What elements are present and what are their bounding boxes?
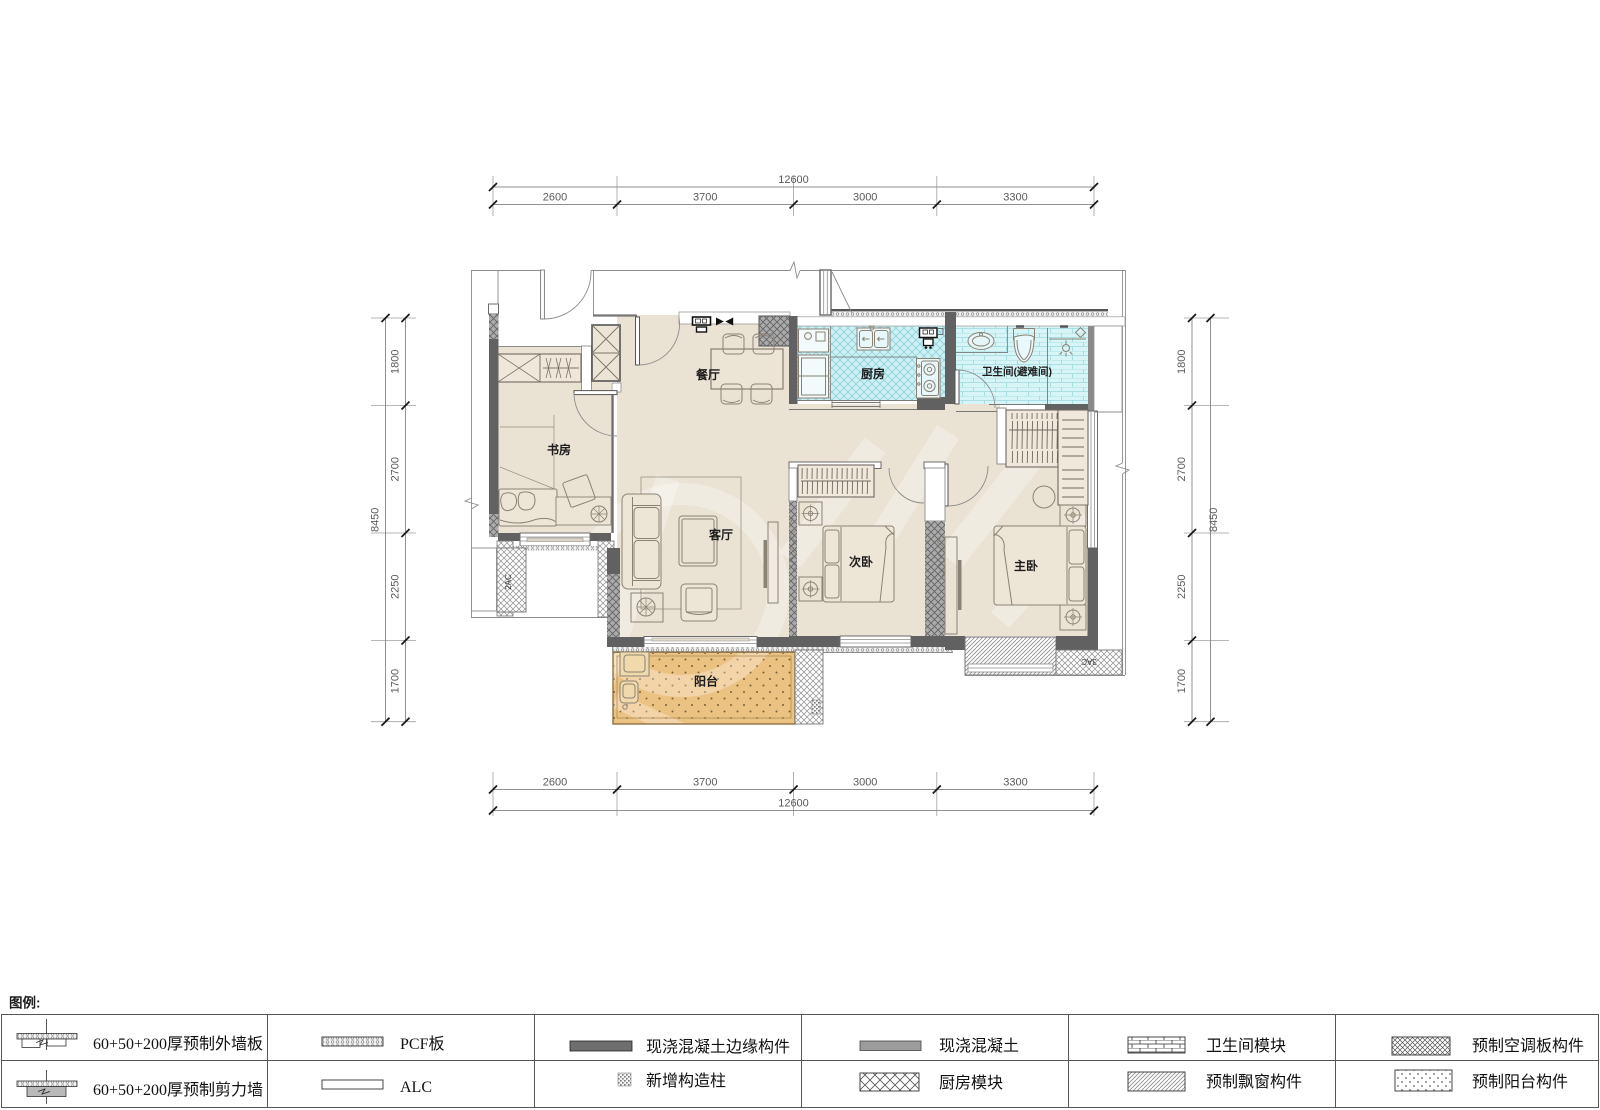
svg-text:60+50+200厚预制剪力墙: 60+50+200厚预制剪力墙 <box>93 1081 263 1099</box>
svg-text:餐厅: 餐厅 <box>696 367 720 382</box>
svg-text:新增构造柱: 新增构造柱 <box>646 1072 726 1090</box>
svg-text:2600: 2600 <box>543 192 567 204</box>
svg-text:3700: 3700 <box>693 192 717 204</box>
svg-text:3000: 3000 <box>853 192 877 204</box>
svg-text:客厅: 客厅 <box>708 527 733 542</box>
svg-text:2700: 2700 <box>390 457 402 481</box>
svg-text:3000: 3000 <box>853 777 877 789</box>
svg-text:2250: 2250 <box>1176 574 1188 598</box>
svg-text:书房: 书房 <box>547 442 571 457</box>
svg-text:现浇混凝土: 现浇混凝土 <box>939 1037 1019 1055</box>
svg-text:8450: 8450 <box>370 508 382 532</box>
svg-text:1800: 1800 <box>1176 349 1188 373</box>
svg-text:8450: 8450 <box>1208 508 1220 532</box>
svg-text:图例:: 图例: <box>9 995 41 1011</box>
svg-text:3AC: 3AC <box>1081 657 1097 666</box>
svg-text:预制空调板构件: 预制空调板构件 <box>1472 1037 1584 1055</box>
svg-text:2250: 2250 <box>390 574 402 598</box>
svg-text:3300: 3300 <box>1003 192 1027 204</box>
svg-text:卫生间模块: 卫生间模块 <box>1206 1037 1286 1055</box>
svg-text:3700: 3700 <box>693 777 717 789</box>
svg-text:预制阳台构件: 预制阳台构件 <box>1472 1073 1568 1091</box>
svg-text:PCF板: PCF板 <box>400 1035 444 1053</box>
svg-text:主卧: 主卧 <box>1014 558 1038 573</box>
svg-text:1700: 1700 <box>1176 669 1188 693</box>
svg-text:3300: 3300 <box>1003 777 1027 789</box>
svg-text:厨房: 厨房 <box>861 366 885 381</box>
svg-text:12600: 12600 <box>778 174 809 186</box>
svg-text:阳台: 阳台 <box>694 674 718 689</box>
svg-text:次卧: 次卧 <box>849 554 873 569</box>
svg-text:60+50+200厚预制外墙板: 60+50+200厚预制外墙板 <box>93 1035 263 1053</box>
svg-text:12600: 12600 <box>778 798 809 810</box>
svg-text:1800: 1800 <box>390 349 402 373</box>
svg-text:厨房模块: 厨房模块 <box>939 1074 1003 1092</box>
svg-text:2AC: 2AC <box>504 574 513 590</box>
svg-text:预制飘窗构件: 预制飘窗构件 <box>1206 1073 1302 1091</box>
svg-text:ALC: ALC <box>400 1079 432 1096</box>
svg-text:现浇混凝土边缘构件: 现浇混凝土边缘构件 <box>646 1038 790 1056</box>
svg-text:2600: 2600 <box>543 777 567 789</box>
svg-text:1700: 1700 <box>390 669 402 693</box>
svg-text:2700: 2700 <box>1176 457 1188 481</box>
svg-text:卫生间(避难间): 卫生间(避难间) <box>982 365 1052 378</box>
